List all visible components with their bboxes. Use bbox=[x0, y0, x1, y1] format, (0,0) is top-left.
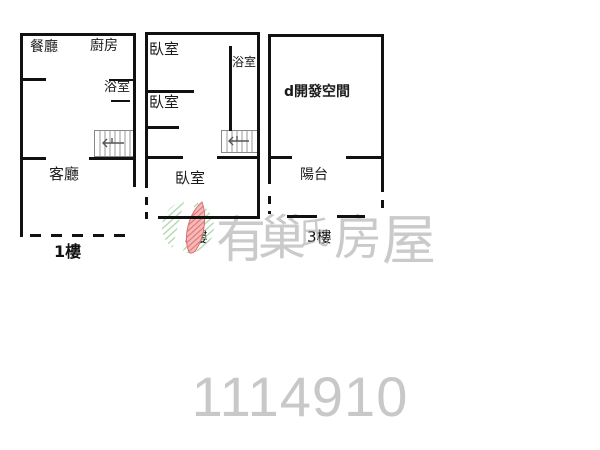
wall-f2-bedroom-divider bbox=[145, 90, 194, 93]
wall-f3-bottom-right bbox=[337, 215, 365, 218]
wall-f2-mid-right bbox=[217, 156, 260, 159]
wall-f1-right bbox=[133, 33, 136, 187]
wall-f3-right-dashed bbox=[381, 200, 384, 215]
floorplan-image: 餐廳 廚房 浴室 客廳 1樓 臥室 bbox=[0, 0, 600, 450]
room-label-living: 客廳 bbox=[49, 166, 79, 183]
room-label-bathroom-f1: 浴室 bbox=[104, 81, 130, 95]
stairs-icon-f1 bbox=[94, 130, 134, 157]
wall-f1-mid-left bbox=[20, 157, 46, 160]
wall-f3-bottom-left bbox=[287, 215, 317, 218]
wall-f3-top bbox=[268, 34, 384, 37]
room-label-bedroom-top: 臥室 bbox=[149, 41, 179, 58]
wall-f3-left bbox=[268, 34, 271, 184]
watermark-char: 屋 bbox=[382, 196, 436, 275]
room-label-balcony: 陽台 bbox=[300, 168, 328, 183]
wall-f2-bedroom-stub bbox=[145, 126, 179, 129]
wall-f3-right bbox=[381, 34, 384, 192]
wall-f2-left bbox=[145, 32, 148, 188]
wall-f1-bath-bottom bbox=[111, 100, 130, 102]
wall-f1-entrance-dashed bbox=[30, 234, 129, 237]
wall-f2-bath-divider bbox=[229, 46, 232, 131]
room-label-bedroom-mid: 臥室 bbox=[149, 94, 179, 111]
wall-f2-mid-left bbox=[145, 156, 183, 159]
wall-f1-left bbox=[20, 33, 23, 237]
watermark-char: 房 bbox=[334, 198, 382, 268]
room-label-dining: 餐廳 bbox=[30, 40, 58, 55]
wall-f3-left-dashed bbox=[268, 196, 271, 214]
wall-f1-bath-top bbox=[109, 79, 136, 81]
wall-f3-mid-left bbox=[268, 156, 292, 159]
listing-id-watermark: 1114910 bbox=[0, 364, 600, 429]
wall-f2-right bbox=[257, 32, 260, 218]
wall-f1-mid-right bbox=[89, 157, 136, 160]
floor-label-1: 1樓 bbox=[54, 243, 81, 261]
wall-f1-dining-stub bbox=[20, 78, 46, 81]
stairs-icon-f2 bbox=[221, 130, 258, 153]
watermark-brand-logo-icon bbox=[158, 198, 218, 256]
wall-f2-left-dashed bbox=[145, 197, 148, 219]
room-label-bedroom-bottom: 臥室 bbox=[175, 170, 205, 187]
wall-f2-top bbox=[145, 32, 260, 35]
wall-f3-mid-right bbox=[346, 156, 384, 159]
wall-f1-top bbox=[20, 33, 136, 36]
room-label-bathroom-f2: 浴室 bbox=[232, 56, 256, 69]
room-label-kitchen: 廚房 bbox=[90, 39, 118, 54]
room-label-dev-space: d開發空間 bbox=[284, 85, 350, 100]
wall-f2-bottom bbox=[158, 216, 260, 219]
